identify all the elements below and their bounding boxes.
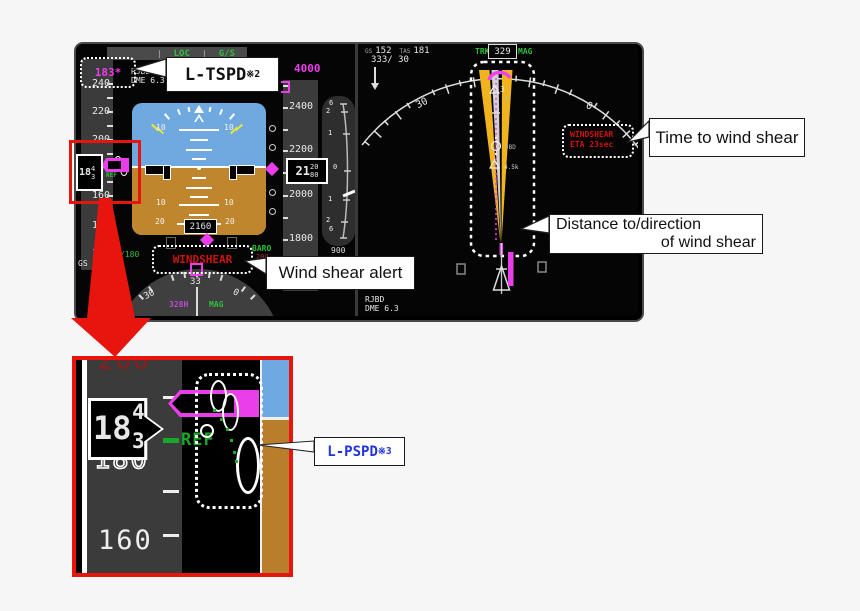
inset-airspeed-roll-bottom: 3 xyxy=(132,429,145,453)
highlight-red-box xyxy=(69,140,141,204)
callout-l-pspd: L-PSPD※3 xyxy=(314,437,405,466)
radio-altitude-value: 2160 xyxy=(190,222,212,232)
inset-pspd-dotted-box xyxy=(195,373,263,509)
windshear-eta-dotted-box: WINDSHEAR ETA 23sec xyxy=(562,124,634,158)
windshear-alert-label: Wind shear alert xyxy=(279,263,403,283)
glideslope-pointer xyxy=(265,162,279,176)
figure-canvas: | LOC | G/S RJBD DME 6.3 240 220 200 180… xyxy=(0,0,860,611)
waypoint-label: 4.5k xyxy=(504,164,518,171)
waypoint-label: JBD xyxy=(505,144,516,151)
magnify-arrow-icon xyxy=(55,190,185,362)
target-speed-readout: 183* xyxy=(95,66,122,79)
heading-ref-label: MAG xyxy=(209,300,223,309)
altitude-readout-box: 21 20 80 xyxy=(286,158,328,184)
altitude-roll-top: 20 xyxy=(310,163,318,171)
pitch-label: 10 xyxy=(224,123,234,132)
windshear-eta-line1: WINDSHEAR xyxy=(570,130,613,139)
vsi-value: 900 xyxy=(331,246,345,255)
bank-pointer-icon xyxy=(194,105,204,113)
pitch-label: 10 xyxy=(156,123,166,132)
l-tspd-label: L-TSPD xyxy=(185,65,246,85)
inset-adi-sky xyxy=(262,360,289,417)
altitude-label: 2200 xyxy=(289,144,313,155)
bank-slip-pointer-icon xyxy=(194,114,204,122)
nd-dme-text: DME 6.3 xyxy=(365,304,399,313)
pitch-label: 20 xyxy=(225,217,235,226)
radio-altitude-box: 2160 xyxy=(184,219,217,234)
altitude-roll-bottom: 80 xyxy=(310,171,318,179)
windshear-eta-line2: ETA 23sec xyxy=(570,140,613,149)
distance-label-line1: Distance to/direction xyxy=(556,216,756,234)
compass-center-label: 33 xyxy=(189,277,202,287)
nav-dme-text: DME 6.3 xyxy=(131,76,165,85)
callout-windshear-alert: Wind shear alert xyxy=(266,256,415,290)
callout-l-tspd: L-TSPD※2 xyxy=(166,57,279,92)
callout-distance-direction: Distance to/direction of wind shear xyxy=(549,214,763,254)
inset-adi-ground xyxy=(262,420,289,573)
altitude-label: 2000 xyxy=(289,189,313,200)
waypoint-label: k xyxy=(505,95,509,102)
l-pspd-note: ※3 xyxy=(378,446,392,457)
l-tspd-note: ※2 xyxy=(246,69,260,80)
nd-station-text: RJBD xyxy=(365,295,384,304)
altitude-bug-icon xyxy=(281,81,290,93)
inset-bottom-speed-label: 160 xyxy=(98,525,153,556)
altitude-label: 1800 xyxy=(289,233,313,244)
inset-airspeed-tens: 18 xyxy=(93,409,132,447)
nd-compass-center-label: 3 xyxy=(500,85,505,94)
distance-label-line2: of wind shear xyxy=(556,234,756,252)
inset-ref-tick xyxy=(163,438,179,443)
target-speed-dotted-box: 183* xyxy=(80,57,136,88)
callout-time-to-windshear: Time to wind shear xyxy=(649,118,805,157)
pitch-label: 10 xyxy=(224,198,234,207)
l-pspd-label: L-PSPD xyxy=(327,444,378,460)
altitude-label: 2400 xyxy=(289,101,313,112)
altitude-hundreds: 21 xyxy=(296,164,310,178)
time-to-windshear-label: Time to wind shear xyxy=(656,128,799,148)
magnified-inset: 200 180 18 4 3 REF xyxy=(72,356,293,577)
fma-separator: | xyxy=(157,49,162,58)
inset-airspeed-roll-top: 4 xyxy=(132,400,145,424)
selected-altitude-readout: 4000 xyxy=(294,62,321,75)
baro-minimums-label: BARO xyxy=(252,244,271,253)
